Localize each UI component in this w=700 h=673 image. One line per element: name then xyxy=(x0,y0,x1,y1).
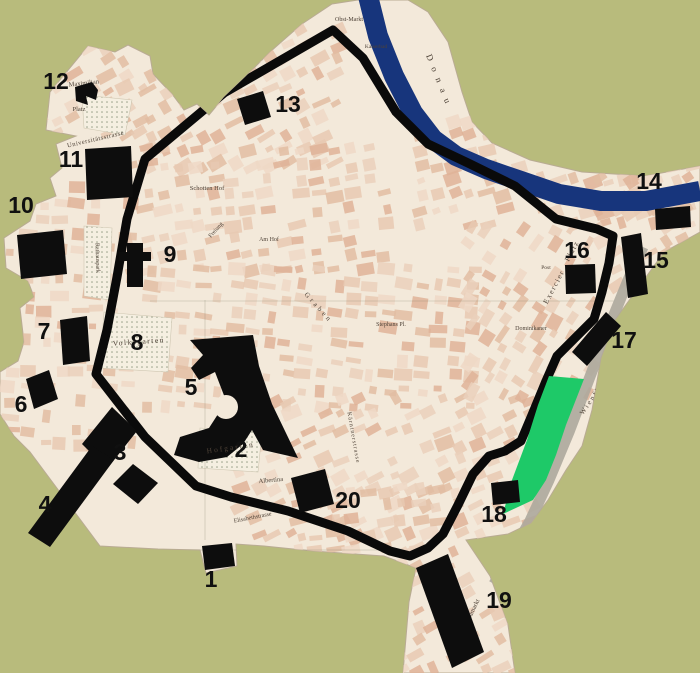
marker-number: 14 xyxy=(636,168,662,194)
landmark-building xyxy=(60,316,90,365)
map-marker-2[interactable]: 2 xyxy=(235,436,248,462)
marker-number: 8 xyxy=(131,329,144,355)
street-label: Platz xyxy=(73,106,86,113)
street-label: Am Hof xyxy=(259,236,279,243)
marker-number: 6 xyxy=(15,391,28,417)
marker-number: 17 xyxy=(611,327,637,353)
landmark-building xyxy=(85,146,133,200)
marker-number: 1 xyxy=(205,566,218,592)
marker-number: 5 xyxy=(185,374,198,400)
street-label: Kaiserbad xyxy=(365,44,388,50)
marker-number: 11 xyxy=(59,146,84,172)
marker-number: 16 xyxy=(564,237,590,263)
marker-number: 13 xyxy=(275,91,301,117)
garden-area xyxy=(82,95,132,135)
marker-number: 20 xyxy=(335,487,361,513)
marker-number: 7 xyxy=(38,318,51,344)
street-label: Obst-Markt xyxy=(335,17,363,23)
marker-number: 10 xyxy=(8,192,34,218)
marker-number: 15 xyxy=(643,247,669,273)
marker-number: 3 xyxy=(114,439,127,465)
vienna-map-svg: Obst-MarktKaiserbadDonauUniversitätsstra… xyxy=(0,0,700,673)
landmark-building xyxy=(17,230,67,279)
hofburg-courtyard-notch xyxy=(214,395,238,419)
street-label: Stephans Pl. xyxy=(376,322,406,328)
street-label: Rathauspark xyxy=(93,243,100,273)
marker-number: 19 xyxy=(486,587,512,613)
map-marker-5[interactable]: 5 xyxy=(185,374,198,400)
map-marker-8[interactable]: 8 xyxy=(131,329,144,355)
vienna-ringstrasse-map: Obst-MarktKaiserbadDonauUniversitätsstra… xyxy=(0,0,700,673)
landmark-building xyxy=(655,206,691,230)
marker-number: 12 xyxy=(43,68,69,94)
marker-number: 9 xyxy=(164,241,177,267)
marker-number: 18 xyxy=(481,501,507,527)
marker-number: 4 xyxy=(39,491,52,517)
landmark-building xyxy=(565,264,596,294)
street-label: Schotten Hof xyxy=(190,185,225,192)
street-label: Post xyxy=(541,265,551,271)
marker-number: 2 xyxy=(235,436,248,462)
street-label: Dominikaner xyxy=(515,326,547,332)
